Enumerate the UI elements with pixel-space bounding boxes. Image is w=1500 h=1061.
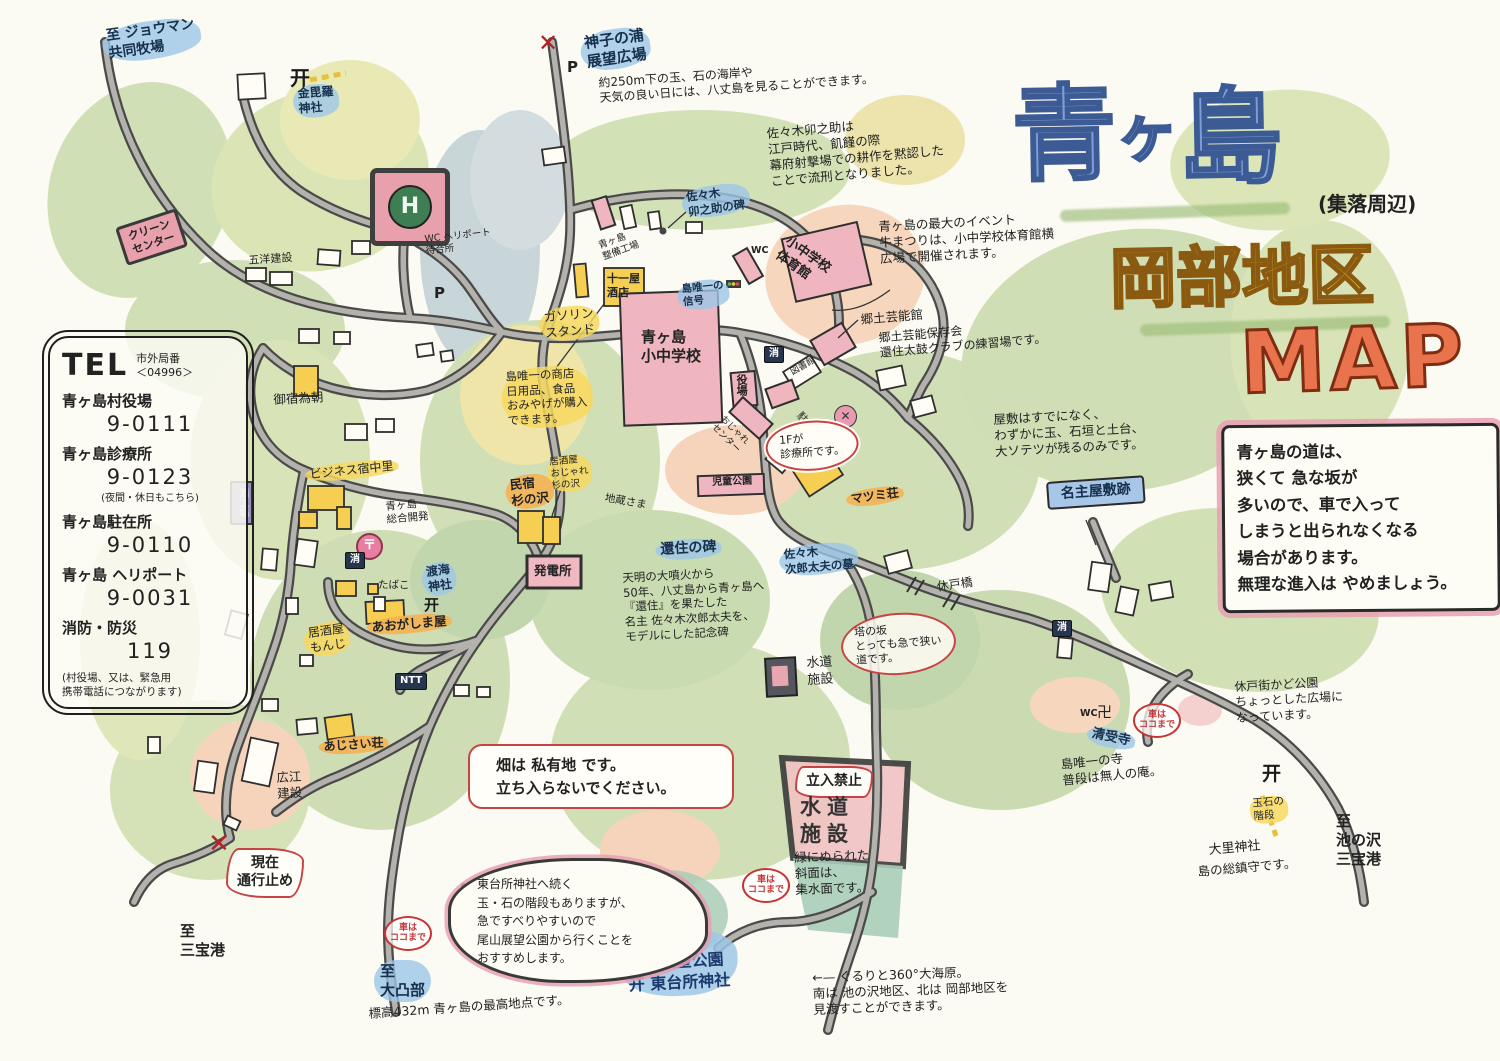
badge-ntt: NTT <box>395 673 427 690</box>
district-part-b: 地区 <box>1241 237 1374 316</box>
dest-sanpoko: 至 三宝港 <box>180 922 225 960</box>
label-suido-shisetsu-big: 水道 施設 <box>800 794 854 848</box>
circle-kuruma-3: 車は ココまで <box>742 868 790 903</box>
label-juichiya: 十一屋 酒店 <box>607 272 640 300</box>
tel-entry-name: 青ヶ島駐在所 <box>62 511 238 532</box>
note-360-view: ←— ぐるりと360°大海原。 南は 池の沢地区、北は 岡部地区を 見渡すことが… <box>812 963 1009 1018</box>
tel-heading: TEL <box>62 348 128 383</box>
label-jido-koen: 児童公園 <box>712 476 752 490</box>
heliport-h-icon: H <box>388 185 432 229</box>
tel-entry-name: 青ヶ島村役場 <box>62 390 238 411</box>
note-nanushi-yashiki: 屋敷はすでになく、 わずかに玉、石垣と土台、 大ソテツが残るのみです。 <box>993 404 1145 460</box>
note-kanju: 天明の大噴火から 50年、八丈島から青ヶ島へ 『還住』を果たした 名主 佐々木次… <box>622 564 767 645</box>
burst-tsukodome: 現在 通行止め <box>226 848 304 898</box>
tel-entry-name: 消防・防災 <box>62 617 238 638</box>
label-hatsudensho: 発電所 <box>534 563 572 579</box>
torii-tokai-icon: 开 <box>424 596 439 615</box>
tel-entry-number: 9-0110 <box>62 533 238 557</box>
title-district: 岡部地区 <box>1109 222 1375 323</box>
label-oyado-tametomo: 御宿為朝 <box>273 389 324 408</box>
tel-info-box: TEL 市外局番 ＜04996＞ 青ヶ島村役場9-0111青ヶ島診療所9-012… <box>48 336 248 709</box>
map-title: 青ヶ島 <box>1011 46 1284 202</box>
label-sogo-kaihatsu: 青ヶ島 総合開発 <box>385 497 429 527</box>
badge-shobo-3: 消 <box>1052 620 1072 637</box>
label-manji: 卍 <box>1097 703 1112 722</box>
p-mark-heliport: P <box>434 284 445 303</box>
tel-footer: (村役場、又は、緊急用 携帯電話につながります) <box>62 671 238 699</box>
note-ushimatsuri: 青ヶ島の最大のイベント 牛まつりは、小中学校体育館横 広場で開催されます。 <box>878 210 1055 267</box>
title-subnote: (集落周辺) <box>1318 188 1416 217</box>
district-part-a: 岡部 <box>1109 239 1242 318</box>
label-wc-gym: WC <box>751 245 768 257</box>
label-hiroe-kensetsu: 広江 建設 <box>276 769 303 802</box>
x-mark-tsukodome: ✕ <box>208 828 230 861</box>
tel-entry-number: 9-0031 <box>62 586 238 610</box>
circle-kuruma-2: 車は ココまで <box>384 916 432 951</box>
label-wc-seijuji: WC <box>1080 708 1097 720</box>
note-kado-koen: 休戸街かど公園 ちょっとした広場に なっています。 <box>1234 674 1344 726</box>
todaisho-advice-bubble: 東台所神社へ続く 玉・石の階段もありますが、 急ですべりやすいので 尾山展望公園… <box>448 858 708 983</box>
badge-shobo-1: 消 <box>764 346 784 363</box>
title-char-3: 島 <box>1177 52 1284 205</box>
tel-area-code: 市外局番 ＜04996＞ <box>136 348 193 381</box>
torii-osato-icon: 开 <box>1262 762 1281 786</box>
title-char-2: ヶ <box>1115 82 1179 173</box>
p-mark-mikonoura: P <box>567 58 578 77</box>
tel-entry-number: 9-0123 <box>62 465 238 489</box>
tel-entry-name: 青ヶ島 ヘリポート <box>62 564 238 585</box>
tel-entry-name: 青ヶ島診療所 <box>62 443 238 464</box>
private-field-note: 畑は 私有地 です。 立ち入らないでください。 <box>468 744 734 809</box>
circle-kuruma-1: 車は ココまで <box>1133 703 1181 738</box>
label-school: 青ヶ島 小中学校 <box>641 328 701 366</box>
tel-entry-number: 9-0111 <box>62 412 238 436</box>
tel-entry-number: 119 <box>62 639 238 663</box>
label-tabako: たばこ <box>378 579 410 592</box>
title-char-1: 青 <box>1011 49 1118 202</box>
dest-otonbu: 至 大凸部 <box>374 960 431 1002</box>
note-shusuimen: 緑にぬられた 斜面は、 集水面です。 <box>794 847 871 898</box>
x-mark-mikonoura: ✕ <box>538 28 558 59</box>
label-yakuba: 役場 <box>734 374 748 396</box>
road-warning-note: 青ヶ島の道は、 狭くて 急な坂が 多いので、車で入って しまうと出られなくなる … <box>1221 423 1500 614</box>
tel-entries: 青ヶ島村役場9-0111青ヶ島診療所9-0123(夜間・休日もこちら)青ヶ島駐在… <box>62 390 238 663</box>
tel-entry-subnote: (夜間・休日もこちら) <box>62 489 238 504</box>
label-suido-shisetsu-small: 水道 施設 <box>806 655 834 690</box>
dest-ikenosawa-sanpoko: 至 池の沢 三宝港 <box>1336 812 1381 870</box>
aogashima-okabe-map: 青ヶ島 (集落周辺) 岡部地区 MAP TEL 市外局番 ＜04996＞ 青ヶ島… <box>0 0 1500 1061</box>
title-map-word: MAP <box>1238 306 1469 414</box>
badge-shobo-2: 消 <box>345 552 365 569</box>
